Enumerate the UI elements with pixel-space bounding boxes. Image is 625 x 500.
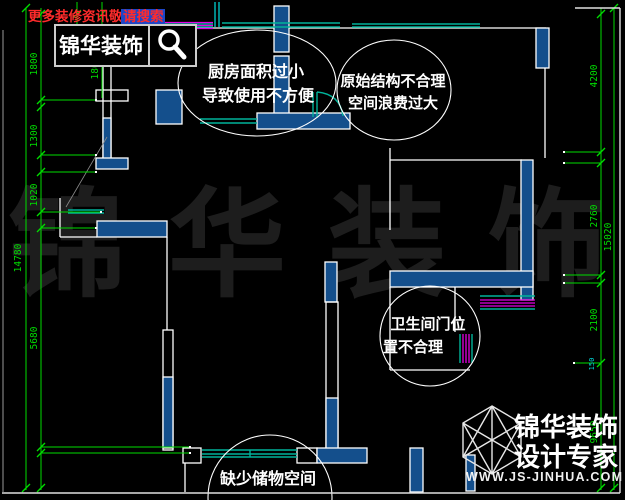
- wall-stub-upper: [96, 90, 128, 101]
- footer-brand: 锦华装饰 设计专家 WWW.JS-JINHUA.COM: [463, 406, 623, 484]
- dim-right-seg3: 2100: [589, 308, 600, 331]
- annotation-kitchen-line2: 导致使用不方便: [202, 86, 315, 105]
- annotation-structure-line1: 原始结构不合理: [340, 72, 445, 90]
- cyan-lines: [215, 2, 219, 27]
- pier-south-left: [183, 448, 201, 463]
- annotation-kitchen-line1: 厨房面积过小: [208, 62, 304, 81]
- promo-text: 更多装修资讯敬: [28, 8, 123, 24]
- search-logo-box: 锦华装饰: [55, 25, 196, 66]
- pier-top-right: [536, 28, 549, 68]
- wall-stub-lower: [96, 158, 128, 169]
- dim-left-seg2: 1300: [29, 124, 40, 147]
- annotation-storage-line1: 缺少储物空间: [220, 469, 316, 488]
- search-logo-label: 锦华装饰: [59, 34, 143, 58]
- annotation-bathroom-line2: 置不合理: [383, 338, 443, 356]
- promo-highlight-text: 请搜索: [123, 8, 164, 24]
- wall-south-blue: [317, 448, 367, 463]
- pier-middle-tall: [274, 6, 289, 52]
- annotation-circle-storage: [208, 435, 332, 500]
- wall-hall-south: [97, 221, 167, 237]
- annotation-structure-line2: 空间浪费过大: [348, 94, 438, 112]
- wall-south-down-blue: [410, 448, 423, 492]
- pier-midlow: [325, 262, 337, 302]
- wall-bottomroom-left-blue: [163, 377, 173, 448]
- annotation-bathroom-line1: 卫生间门位: [390, 315, 465, 333]
- dim-left-seg1: 1800: [29, 52, 40, 75]
- cad-floorplan-screenshot: 锦华装饰: [0, 0, 625, 500]
- dim-right-total: 15020: [603, 222, 614, 251]
- footer-brand-line1: 锦华装饰: [514, 412, 618, 442]
- dim-left-seg3: 1020: [29, 183, 40, 206]
- floorplan-canvas: 锦华装饰: [0, 0, 625, 500]
- promo-banner: 更多装修资讯敬 请搜索: [28, 8, 165, 24]
- dim-left-seg4: 5680: [29, 326, 40, 349]
- pier-kitchen-south: [156, 90, 182, 124]
- footer-website: WWW.JS-JINHUA.COM: [466, 470, 623, 484]
- wall-bottomroom-right-blue: [326, 398, 338, 450]
- wall-kitchen-south: [257, 113, 350, 129]
- dim-right-small: 150: [588, 358, 596, 371]
- dim-left-total: 14780: [13, 243, 24, 272]
- dim-right-seg2: 2760: [589, 204, 600, 227]
- annotation-circle-structure: [337, 40, 451, 140]
- pier-south-right: [297, 448, 317, 463]
- wall-bathroom-north: [390, 271, 533, 287]
- dim-right-seg1: 4200: [589, 64, 600, 87]
- footer-brand-line2: 设计专家: [514, 442, 618, 472]
